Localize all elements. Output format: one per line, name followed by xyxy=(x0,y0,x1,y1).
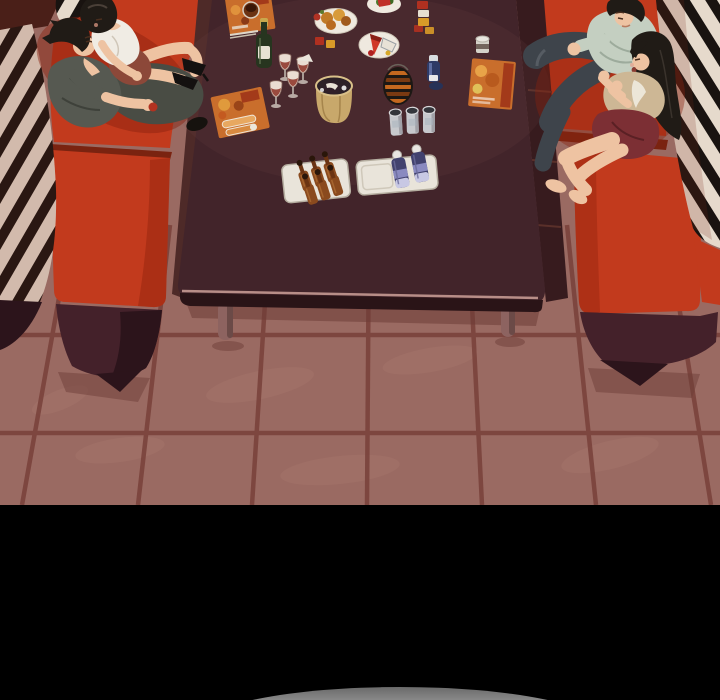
woman-eye xyxy=(635,59,640,60)
woman-hand xyxy=(612,81,623,92)
drink-cup xyxy=(243,2,259,18)
ice-bucket xyxy=(316,77,352,124)
water-glass xyxy=(476,36,489,53)
blush xyxy=(630,63,634,67)
webtoon-panel-page: Overhead comic panel of a dim bar booth:… xyxy=(0,0,720,700)
fruit-plate xyxy=(359,32,399,58)
table-leg xyxy=(218,302,233,340)
blush xyxy=(94,23,98,27)
woman-eye xyxy=(96,19,102,20)
red-object xyxy=(149,103,158,112)
man-hand xyxy=(568,43,581,56)
man-sleeve xyxy=(580,40,604,46)
menu-card xyxy=(468,58,516,110)
panel-image xyxy=(0,0,720,700)
woman-hand xyxy=(599,71,610,82)
illustration-panel xyxy=(0,0,720,505)
beer-cans xyxy=(389,107,435,136)
woman-hand xyxy=(132,71,142,81)
